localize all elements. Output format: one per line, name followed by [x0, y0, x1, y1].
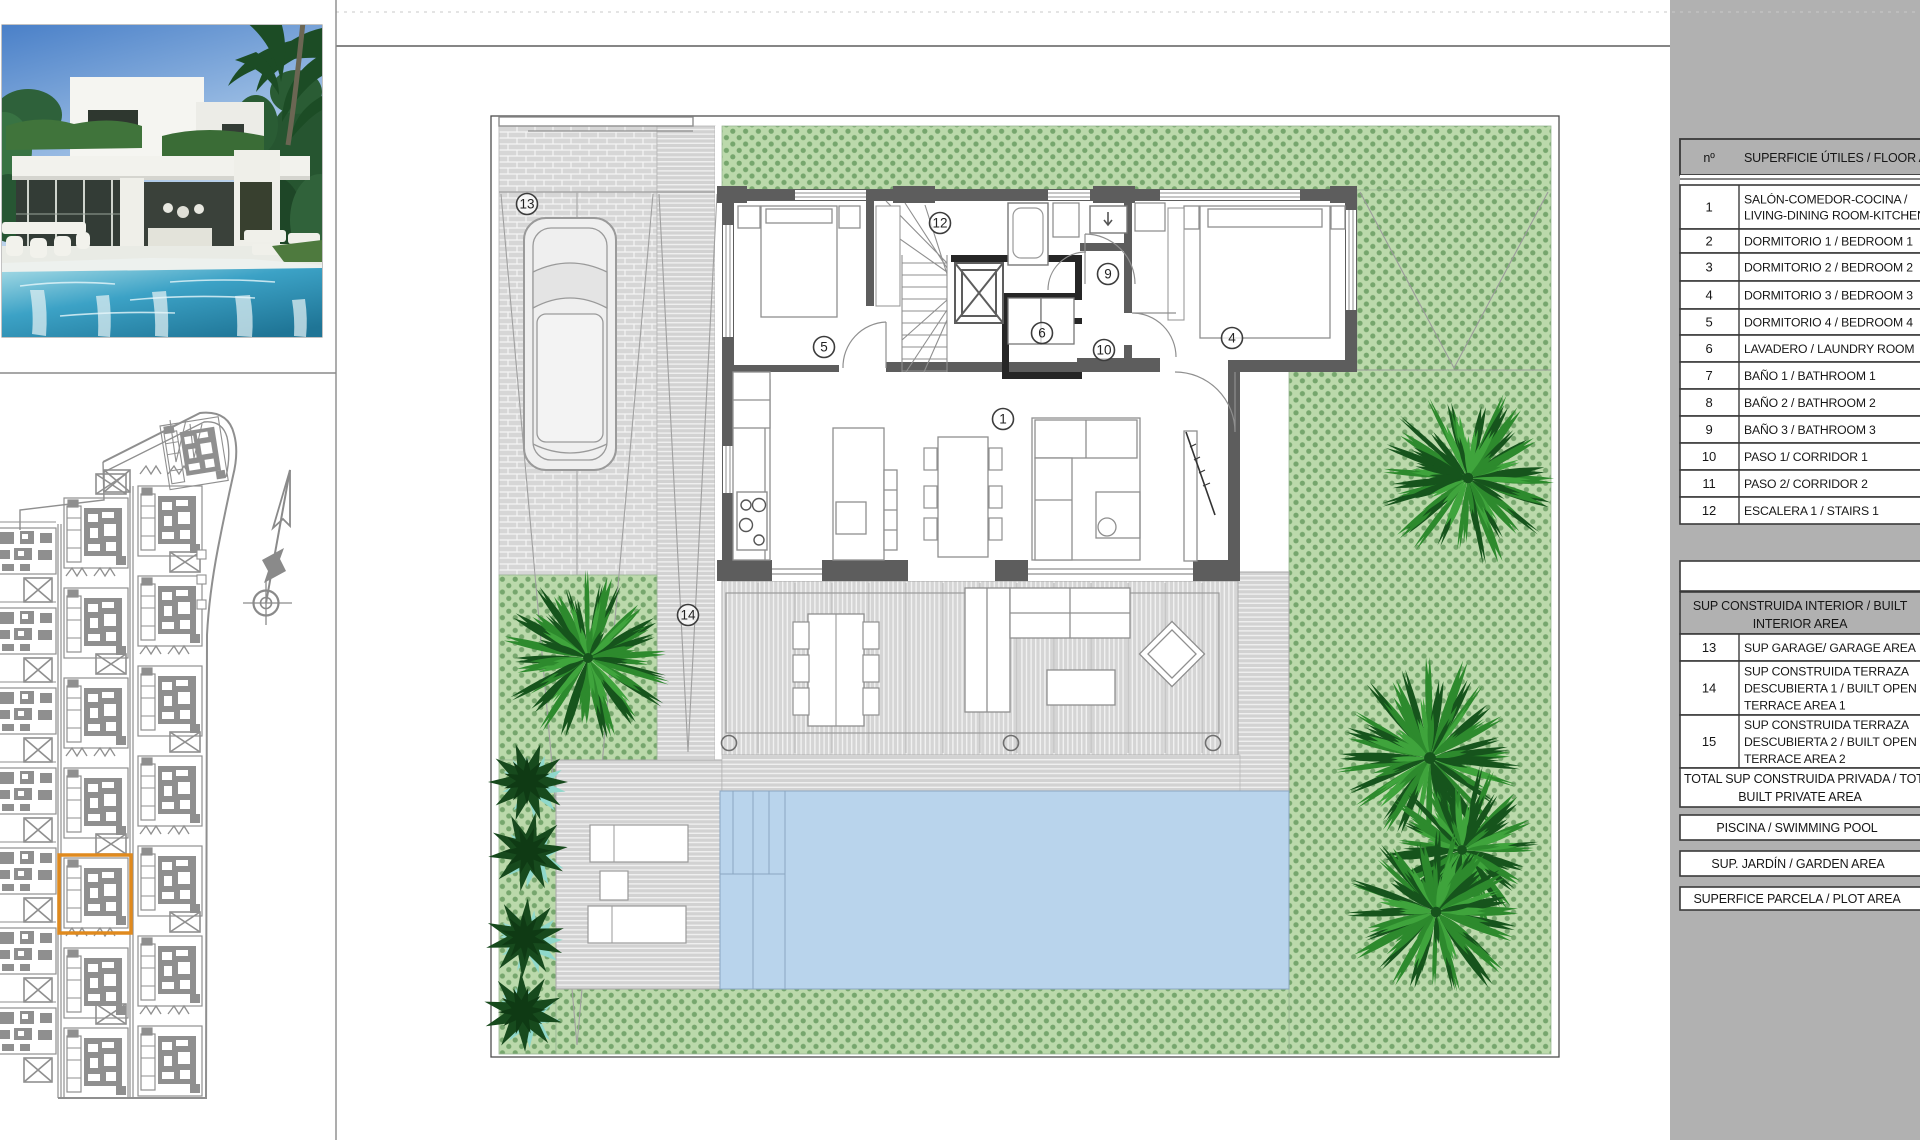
svg-text:TOTAL SUP CONSTRUIDA PRIVADA /: TOTAL SUP CONSTRUIDA PRIVADA / TOTA: [1684, 772, 1920, 786]
svg-text:BAÑO 2 / BATHROOM 2: BAÑO 2 / BATHROOM 2: [1744, 396, 1876, 410]
svg-text:ESCALERA 1 / STAIRS 1: ESCALERA 1 / STAIRS 1: [1744, 504, 1879, 518]
svg-text:6: 6: [1038, 326, 1046, 341]
svg-text:13: 13: [1702, 640, 1716, 655]
svg-text:SUP. JARDÍN / GARDEN AREA: SUP. JARDÍN / GARDEN AREA: [1711, 856, 1885, 871]
svg-text:DORMITORIO 4 / BEDROOM 4: DORMITORIO 4 / BEDROOM 4: [1744, 316, 1913, 330]
svg-text:DORMITORIO 2 / BEDROOM 2: DORMITORIO 2 / BEDROOM 2: [1744, 261, 1913, 275]
svg-text:SUP GARAGE/ GARAGE AREA: SUP GARAGE/ GARAGE AREA: [1744, 641, 1917, 655]
svg-text:12: 12: [1702, 503, 1716, 518]
svg-text:4: 4: [1228, 331, 1236, 346]
svg-text:8: 8: [1705, 395, 1712, 410]
svg-text:9: 9: [1104, 267, 1112, 282]
svg-text:SUP CONSTRUIDA TERRAZA: SUP CONSTRUIDA TERRAZA: [1744, 665, 1910, 679]
svg-text:LIVING-DINING ROOM-KITCHEN: LIVING-DINING ROOM-KITCHEN: [1744, 209, 1920, 223]
svg-text:SALÓN-COMEDOR-COCINA /: SALÓN-COMEDOR-COCINA /: [1744, 192, 1908, 207]
svg-text:6: 6: [1705, 341, 1712, 356]
svg-text:PASO 2/ CORRIDOR 2: PASO 2/ CORRIDOR 2: [1744, 477, 1868, 491]
svg-text:SUPERFICE PARCELA / PLOT AREA: SUPERFICE PARCELA / PLOT AREA: [1693, 892, 1901, 906]
svg-text:LAVADERO / LAUNDRY ROOM: LAVADERO / LAUNDRY ROOM: [1744, 342, 1914, 356]
svg-text:TERRACE AREA 2: TERRACE AREA 2: [1744, 752, 1846, 766]
svg-text:2: 2: [1705, 234, 1712, 249]
svg-text:10: 10: [1702, 449, 1716, 464]
svg-text:13: 13: [519, 197, 534, 212]
svg-text:3: 3: [1705, 260, 1712, 275]
svg-text:SUPERFICIE ÚTILES / FLOOR AREA: SUPERFICIE ÚTILES / FLOOR AREA: [1744, 150, 1920, 165]
svg-text:9: 9: [1705, 422, 1712, 437]
svg-text:BAÑO 3 / BATHROOM 3: BAÑO 3 / BATHROOM 3: [1744, 423, 1876, 437]
svg-text:PASO 1/ CORRIDOR 1: PASO 1/ CORRIDOR 1: [1744, 450, 1868, 464]
svg-text:1: 1: [1705, 200, 1712, 215]
svg-text:DESCUBIERTA 1 / BUILT OPEN: DESCUBIERTA 1 / BUILT OPEN: [1744, 682, 1917, 696]
svg-text:SUP CONSTRUIDA INTERIOR / BUIL: SUP CONSTRUIDA INTERIOR / BUILT: [1693, 599, 1908, 613]
svg-text:11: 11: [1702, 476, 1715, 491]
svg-text:4: 4: [1705, 288, 1712, 303]
svg-text:10: 10: [1096, 343, 1111, 358]
svg-text:5: 5: [820, 340, 828, 355]
svg-text:TERRACE AREA 1: TERRACE AREA 1: [1744, 699, 1846, 713]
svg-text:nº: nº: [1703, 151, 1715, 165]
svg-text:7: 7: [1705, 368, 1712, 383]
svg-text:BAÑO 1 / BATHROOM 1: BAÑO 1 / BATHROOM 1: [1744, 369, 1876, 383]
svg-text:5: 5: [1705, 315, 1712, 330]
svg-text:1: 1: [999, 412, 1007, 427]
svg-text:12: 12: [932, 216, 947, 231]
svg-text:14: 14: [1702, 681, 1716, 696]
svg-text:DORMITORIO 1 / BEDROOM 1: DORMITORIO 1 / BEDROOM 1: [1744, 235, 1913, 249]
svg-text:SUP CONSTRUIDA TERRAZA: SUP CONSTRUIDA TERRAZA: [1744, 718, 1910, 732]
svg-text:BUILT PRIVATE AREA: BUILT PRIVATE AREA: [1738, 790, 1862, 804]
svg-text:DORMITORIO 3 / BEDROOM 3: DORMITORIO 3 / BEDROOM 3: [1744, 289, 1913, 303]
svg-text:INTERIOR AREA: INTERIOR AREA: [1753, 617, 1848, 631]
svg-text:PISCINA / SWIMMING POOL: PISCINA / SWIMMING POOL: [1716, 821, 1877, 835]
svg-text:DESCUBIERTA 2 / BUILT OPEN: DESCUBIERTA 2 / BUILT OPEN: [1744, 735, 1917, 749]
svg-text:15: 15: [1702, 734, 1716, 749]
svg-text:14: 14: [680, 608, 696, 623]
